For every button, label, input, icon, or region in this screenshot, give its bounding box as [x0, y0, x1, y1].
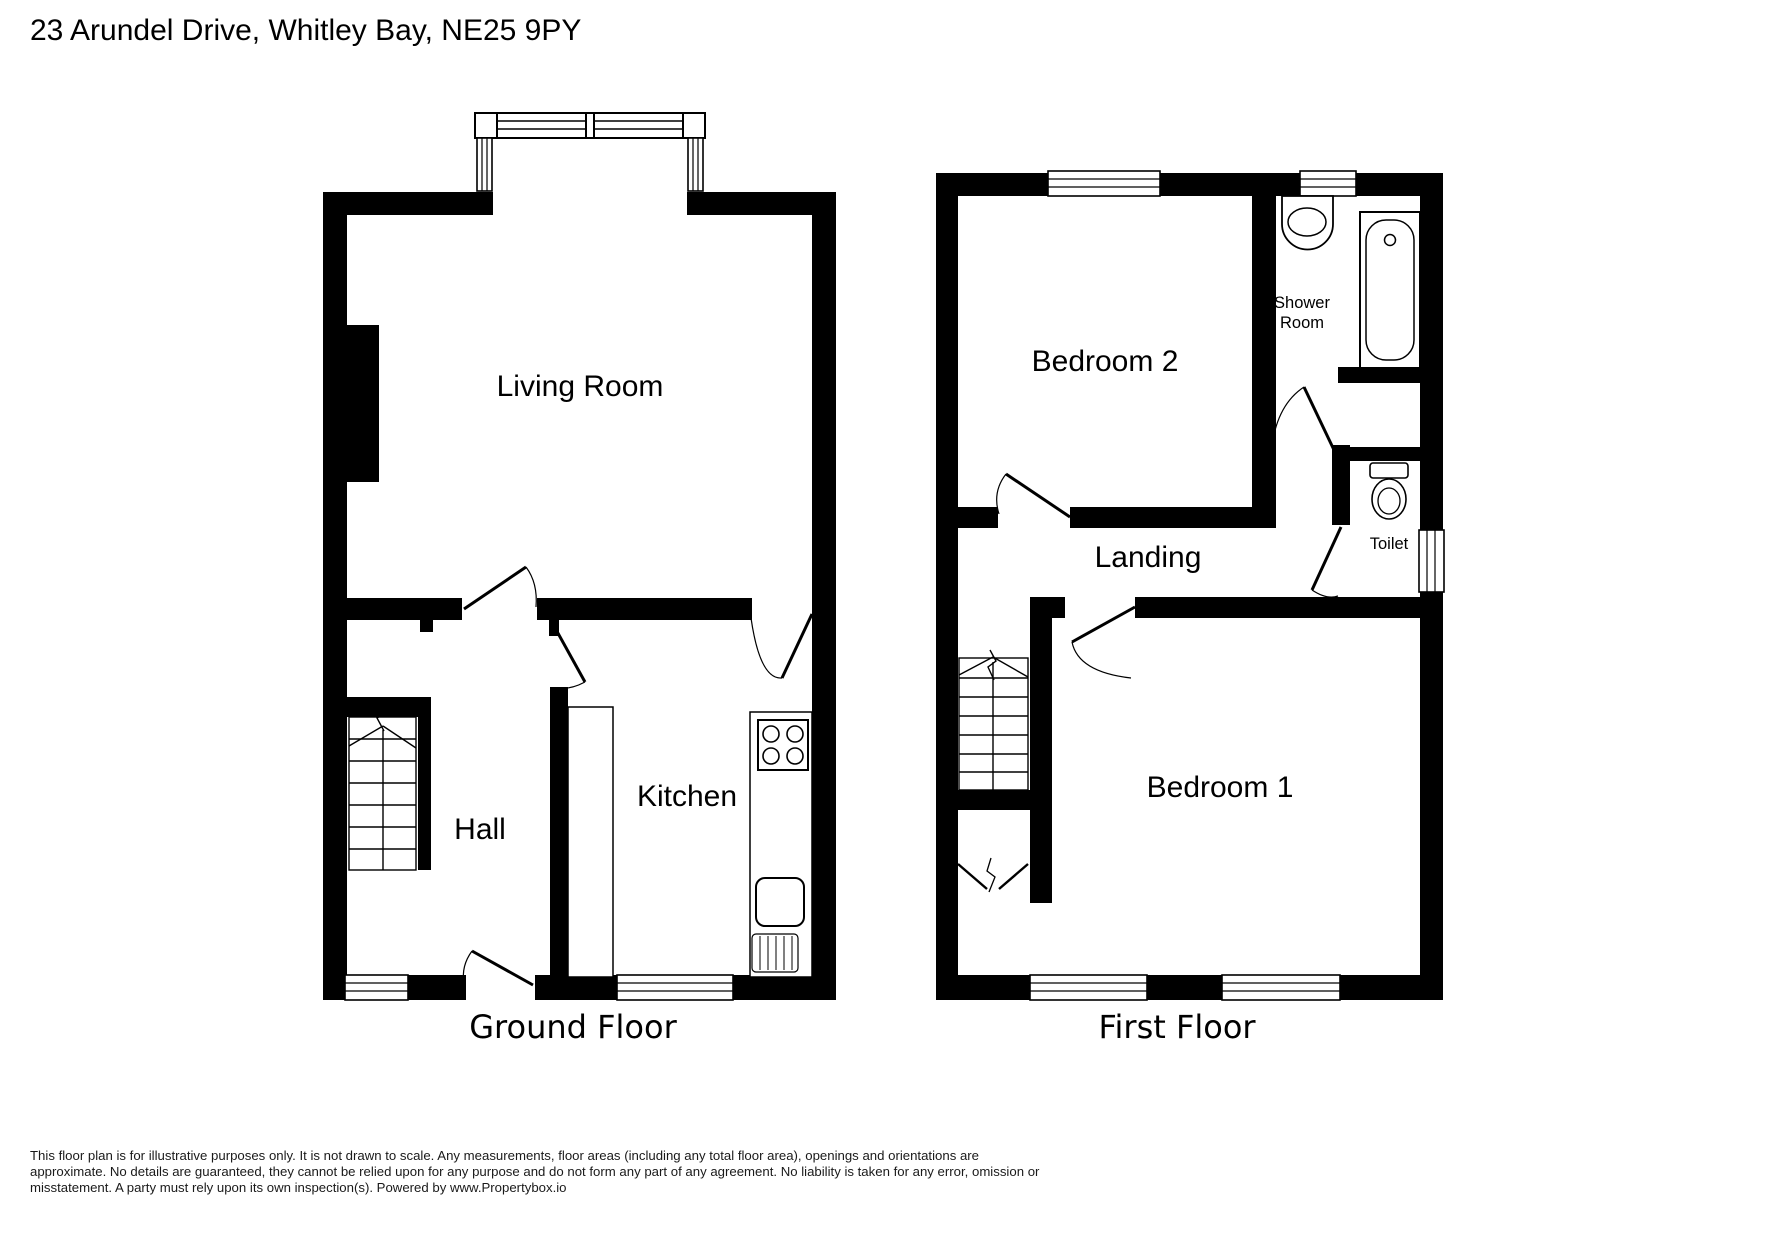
disclaimer-line: This floor plan is for illustrative purp… [30, 1148, 1039, 1164]
hall-living-room-door [464, 567, 536, 609]
shower-room-label-line1: Shower [1274, 294, 1330, 312]
first-floor-label: First Floor [1098, 1008, 1255, 1046]
toilet-window [1419, 530, 1444, 592]
kitchen-label: Kitchen [637, 780, 737, 813]
toilet-door [1312, 527, 1341, 597]
hall-kitchen-door [554, 626, 585, 688]
bay-window [475, 113, 705, 191]
kitchen-window [617, 975, 733, 1000]
living-room-kitchen-door [751, 614, 812, 678]
bathtub [1360, 212, 1420, 368]
disclaimer-line: misstatement. A party must rely upon its… [30, 1180, 1039, 1196]
first-floor-plan: Bedroom 2 Shower Room Landing Toilet Bed… [936, 171, 1444, 1000]
gf-stairs [349, 700, 416, 870]
shower-room-door [1272, 387, 1334, 450]
hall-front-window [345, 975, 408, 1000]
living-room-label: Living Room [497, 370, 664, 403]
ff-doors [958, 387, 1341, 892]
hall-label: Hall [454, 813, 506, 846]
disclaimer: This floor plan is for illustrative purp… [30, 1148, 1039, 1195]
bedroom1-door [1072, 607, 1135, 678]
bedroom2-window [1048, 171, 1160, 196]
kitchen-counters [568, 707, 812, 977]
shower-room-label-line2: Room [1280, 314, 1324, 332]
shower-room-window [1300, 171, 1356, 196]
washbasin [1282, 196, 1333, 250]
bedroom1-label: Bedroom 1 [1147, 771, 1294, 804]
kitchen-counter-left [568, 707, 613, 977]
ground-floor-plan: Living Room Hall Kitchen [323, 113, 836, 1000]
landing-label: Landing [1095, 541, 1202, 574]
ground-floor-label: Ground Floor [469, 1008, 676, 1046]
ff-stairs [959, 650, 1028, 790]
disclaimer-line: approximate. No details are guaranteed, … [30, 1164, 1039, 1180]
toilet-label: Toilet [1370, 535, 1409, 553]
cupboard-doors [958, 858, 1028, 892]
bedroom2-label: Bedroom 2 [1032, 345, 1179, 378]
bedroom1-window-left [1030, 975, 1147, 1000]
floorplan-page: 23 Arundel Drive, Whitley Bay, NE25 9PY [0, 0, 1771, 1239]
floorplan-drawing: Living Room Hall Kitchen [0, 0, 1771, 1239]
bedroom1-window-right [1222, 975, 1340, 1000]
front-door [463, 951, 533, 985]
bedroom2-door [997, 474, 1070, 517]
chimney-breast [347, 325, 379, 482]
toilet-fixture [1370, 463, 1408, 519]
